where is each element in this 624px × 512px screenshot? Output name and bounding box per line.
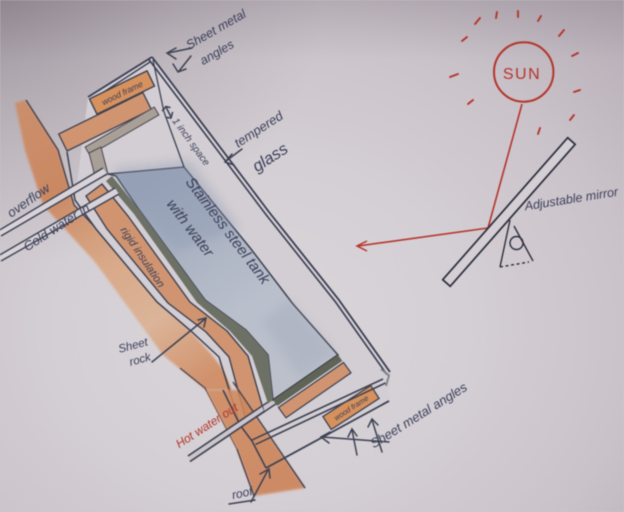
svg-text:SUN: SUN <box>503 66 541 83</box>
